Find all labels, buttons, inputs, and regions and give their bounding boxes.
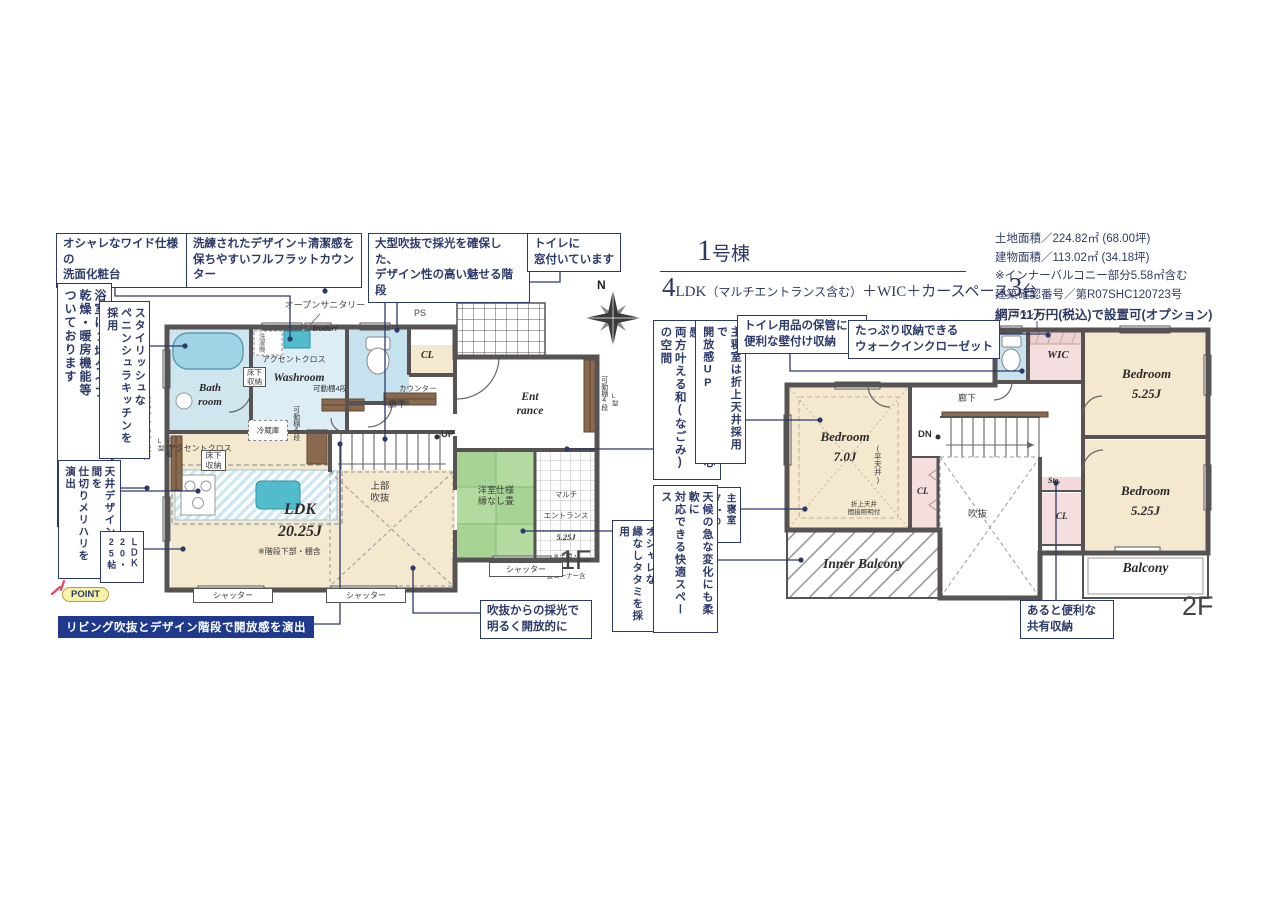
layout-line: 4 LDK （マルチエントランス含む） ＋WIC＋カースペース 3 台	[662, 272, 1037, 303]
flat-ceiling-label: (平天井)	[873, 444, 882, 500]
ldk-label: LDK	[676, 284, 707, 301]
floor2-label: 2F	[1182, 590, 1214, 624]
upper-void-label: 上部 吹抜	[362, 481, 398, 505]
void-2f	[940, 457, 1040, 598]
building-title: 1号棟	[697, 234, 750, 268]
callout-ldk-size: ＬＤＫ 20・25帖	[100, 531, 144, 583]
callout-vanity: オシャレなワイド仕様の 洗面化粧台	[56, 233, 188, 288]
multi-line1: マルチ	[535, 490, 597, 499]
land-area: 土地面積／224.82㎡ (68.00坪)	[995, 231, 1212, 248]
open-sanitary-label: オープンサニタリー Irodori	[265, 289, 385, 345]
stairs-1f	[330, 432, 455, 470]
dn-label: DN	[918, 429, 932, 441]
shutter-label-1: シャッター	[193, 588, 273, 603]
counter-label-1f: カウンター	[399, 384, 437, 393]
ldk-count: 4	[662, 272, 676, 303]
void-label-2f: 吹抜	[968, 509, 987, 521]
multi-size: 5.25J	[535, 532, 597, 543]
open-sanitary-sub: Irodori	[265, 323, 385, 334]
callout-void-light: 吹抜からの採光で 明るく開放的に	[480, 600, 592, 639]
washer-label: 洗濯機	[256, 333, 264, 353]
shutter-label-3: シャッター	[489, 562, 563, 577]
porch-tiles	[457, 303, 545, 357]
underfloor-storage-1: 床下 収納	[243, 367, 266, 387]
callout-stairs: 大型吹抜で採光を確保した、 デザイン性の高い魅せる階段	[368, 233, 530, 303]
shelf4-right-label: 可動棚4段	[599, 376, 608, 411]
shelf4-label: 可動棚4段	[313, 384, 347, 393]
ldk-plus: ＋WIC＋カースペース	[862, 280, 1009, 301]
callout-weather: 天候の急な変化にも柔軟に 対応できる快適スペース	[653, 485, 718, 633]
entrance-label: Ent rance	[487, 390, 573, 419]
open-sanitary-title: オープンサニタリー	[265, 300, 385, 311]
bathroom-label: Bath room	[168, 382, 252, 410]
building-number: 1	[697, 234, 712, 267]
ldk-paren: （マルチエントランス含む）	[706, 283, 862, 300]
callout-wic: たっぷり収納できる ウォークインクローゼット	[848, 320, 1000, 359]
stove-icon	[181, 475, 215, 515]
shelf4-right-type-label: L型	[609, 393, 617, 407]
ldk-note-label: ※階段下部・棚含	[258, 547, 321, 557]
shelf4-mid-label: 可動棚4段	[291, 406, 300, 464]
point-bar: リビング吹抜とデザイン階段で開放感を演出	[58, 616, 314, 638]
balcony-note: ※インナーバルコニー部分5.58㎡含む	[995, 268, 1212, 285]
cl-a-label: CL	[917, 486, 929, 497]
building-suffix: 号棟	[712, 244, 750, 265]
bedroom-c-label: Bedroom 5.25J	[1083, 481, 1208, 520]
shutter-label-2: シャッター	[326, 588, 406, 603]
ceiling-note-label: 折上天井 間接照明付	[840, 501, 888, 517]
cl-label-1f: CL	[421, 350, 434, 363]
confirmation-number: 建築確認番号／第R07SHC120723号	[995, 287, 1212, 304]
floorplan-flyer: { "colors": {"navy":"#2c3a6a","bar_navy"…	[0, 0, 1280, 903]
callout-kitchen: スタイリッシュな ペニンシュラキッチンを採用	[99, 301, 150, 459]
fridge-label: 冷蔵庫	[248, 420, 288, 441]
north-label: N	[597, 278, 606, 293]
accent-cloth-label-1: アクセントクロス	[262, 355, 326, 365]
callout-shared-storage: あると便利な 共有収納	[1020, 600, 1114, 639]
wall-storage-counter	[1030, 331, 1082, 344]
ldk-label: LDK 20.25J	[240, 499, 360, 544]
compass-icon	[585, 290, 641, 346]
cl-b-label: CL	[1056, 511, 1068, 522]
floor1-label: 1F	[560, 544, 592, 578]
balcony-label: Balcony	[1083, 560, 1208, 577]
inner-balcony-label: Inner Balcony	[787, 556, 940, 573]
hallway-label-2f: 廊下	[958, 393, 976, 404]
sto-label: Sto.	[1048, 476, 1061, 486]
stairs-2f	[936, 412, 1051, 457]
callout-flat-counter: 洗練されたデザイン＋清潔感を 保ちやすいフルフラットカウンター	[186, 233, 362, 288]
shelf-l-label: 可動棚 L型	[155, 438, 171, 494]
counter-label-2f: カウンター	[1012, 310, 1050, 319]
point-badge: POINT	[62, 587, 109, 602]
up-label: UP	[441, 429, 454, 441]
building-area: 建物面積／113.02㎡ (34.18坪)	[995, 250, 1212, 267]
callout-toilet-window: トイレに 窓付いています	[527, 233, 621, 272]
hallway-label-1f: 廊下	[388, 399, 406, 410]
underfloor-storage-2: 床下 収納	[201, 450, 226, 471]
bedroom-a-label: Bedroom 5.25J	[1085, 364, 1208, 403]
toilet2-icon	[1002, 336, 1021, 371]
ps-label: PS	[414, 308, 426, 319]
bathtub-icon	[173, 333, 243, 369]
wic-label: WIC	[1038, 349, 1078, 363]
bedroom-b-label: Bedroom 7.0J	[790, 427, 900, 466]
multi-line2: エントランス	[535, 511, 597, 520]
tatami-label: 洋室仕様 縁なし畳	[462, 485, 530, 508]
